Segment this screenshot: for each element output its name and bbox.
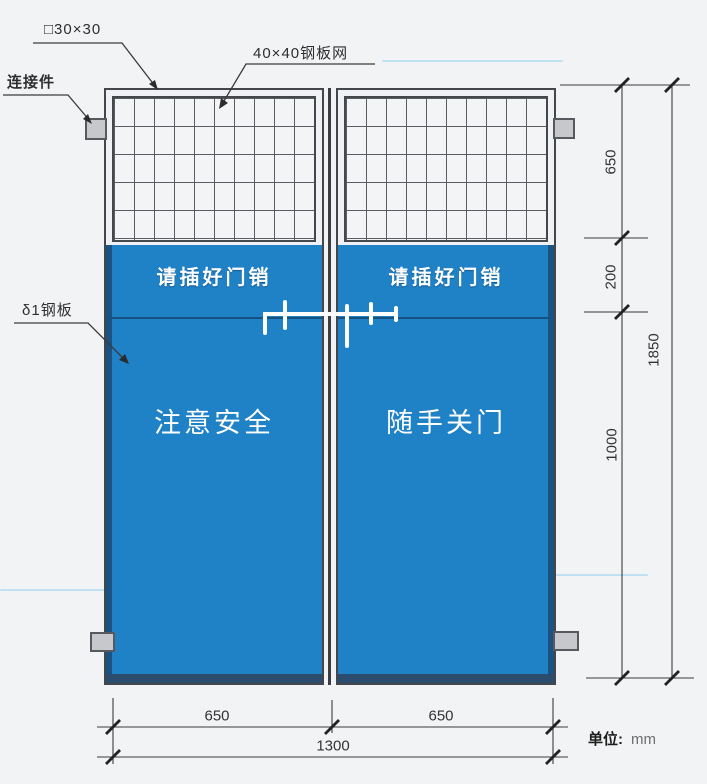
dim-label-650-vertical: 650 xyxy=(603,149,620,174)
drawing-lines-overlay xyxy=(0,0,707,784)
leader-connector-callout xyxy=(3,95,90,121)
dim-label-1300-total: 1300 xyxy=(316,738,349,755)
door-latch xyxy=(265,302,396,346)
unit-note: 单位:mm xyxy=(588,728,656,749)
unit-value: mm xyxy=(631,731,656,748)
dim-label-650-right: 650 xyxy=(428,708,453,725)
safety-door-diagram: 请插好门销 注意安全 请插好门销 随手关门 xyxy=(0,0,707,784)
arrowhead-icon xyxy=(149,80,158,90)
dim-label-1850-total: 1850 xyxy=(646,333,663,366)
leader-arrowheads xyxy=(83,80,228,364)
dimension-lines-right xyxy=(560,85,694,678)
leader-mesh-callout xyxy=(221,64,375,106)
callout-mesh-size: 40×40钢板网 xyxy=(253,42,348,63)
callout-steel-plate: δ1钢板 xyxy=(22,299,73,320)
dimension-ticks xyxy=(106,78,679,764)
arrowhead-icon xyxy=(219,98,228,109)
callout-connector: 连接件 xyxy=(7,71,55,92)
leader-plate-callout xyxy=(14,323,126,361)
dim-label-1000-vertical: 1000 xyxy=(604,428,621,461)
dim-label-200-vertical: 200 xyxy=(603,264,620,289)
arrowhead-icon xyxy=(83,114,92,124)
unit-label: 单位: xyxy=(588,731,623,748)
callout-frame-size: □30×30 xyxy=(44,21,101,38)
dim-label-650-left: 650 xyxy=(204,708,229,725)
